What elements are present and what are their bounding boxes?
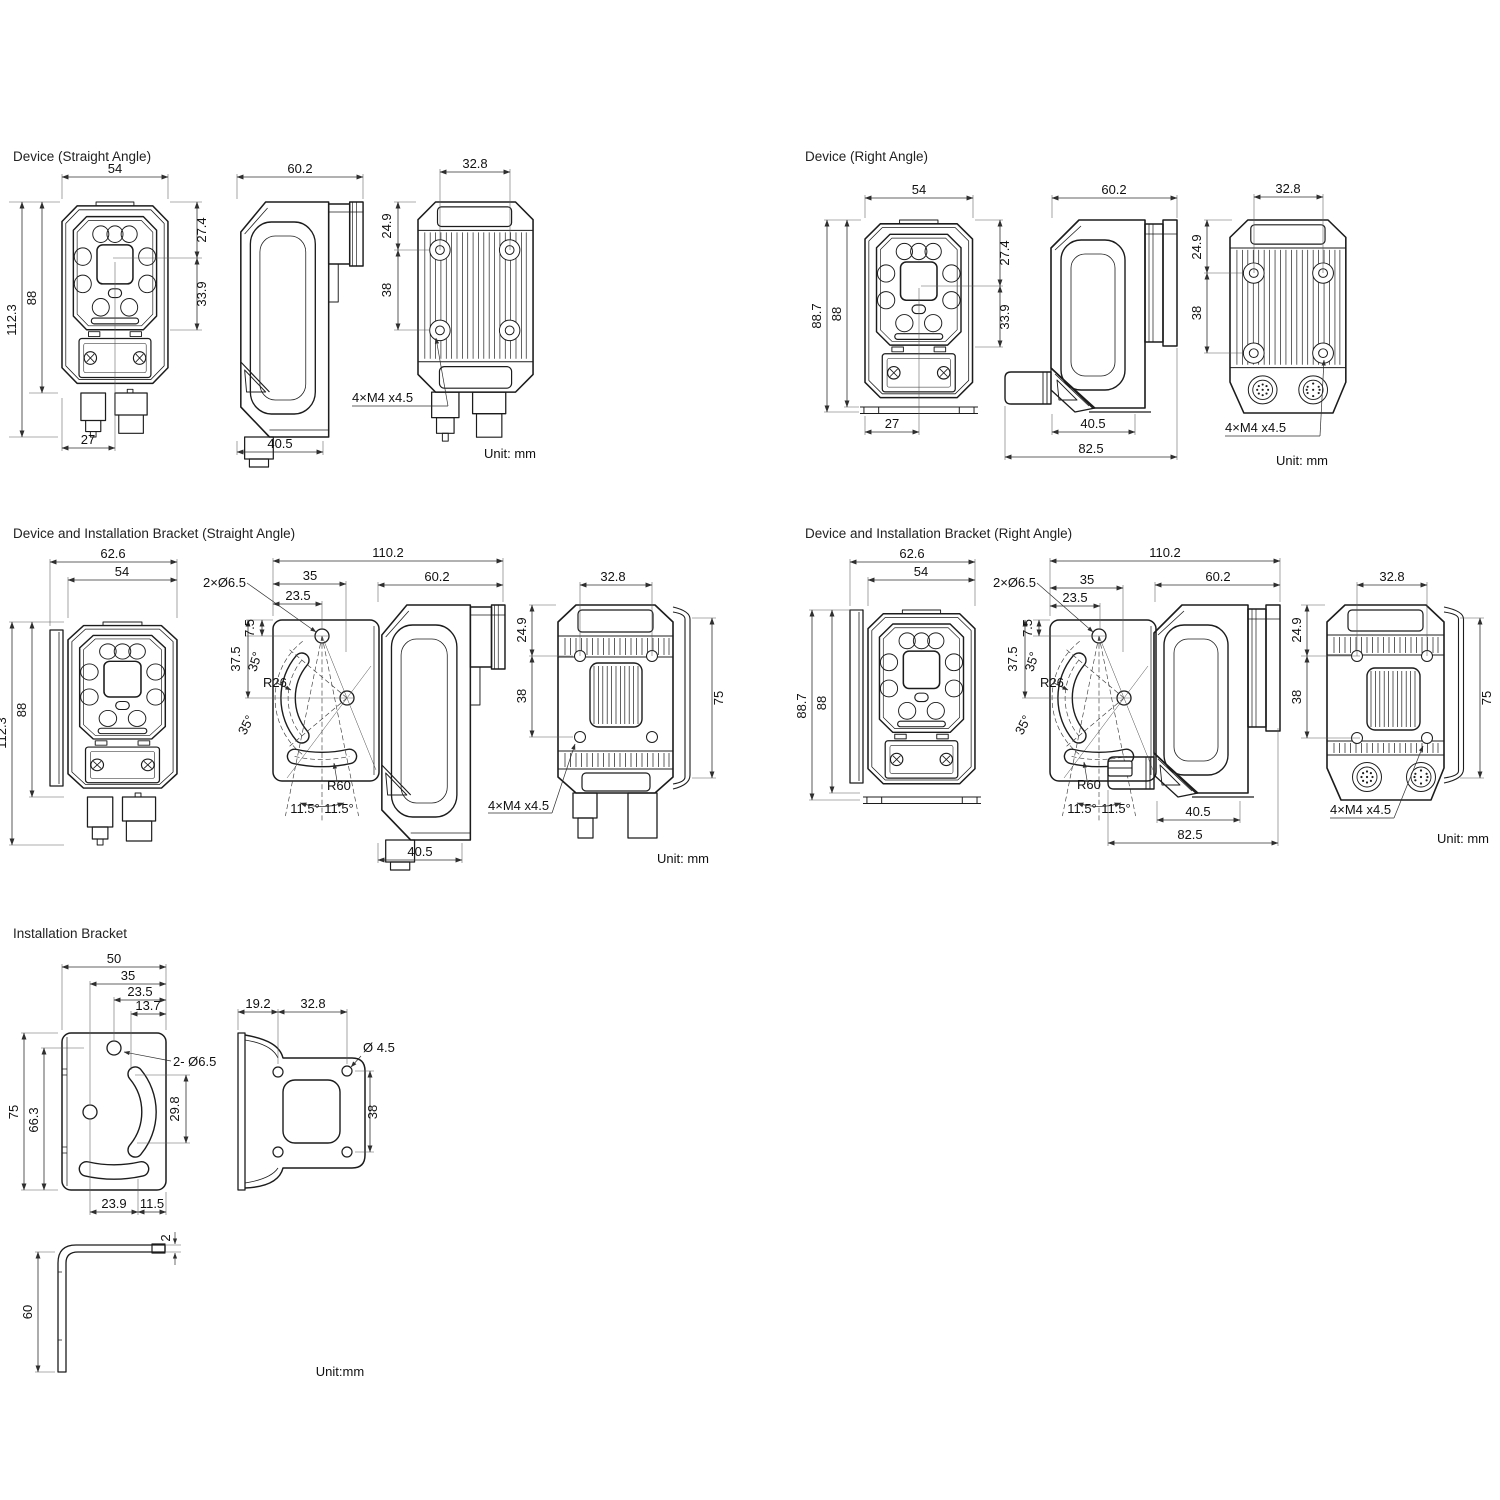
dim-bracket-width: 62.6 bbox=[899, 546, 924, 561]
unit-label: Unit: mm bbox=[657, 851, 709, 866]
bracket-view bbox=[273, 620, 379, 822]
dim-overall: 110.2 bbox=[372, 545, 404, 560]
dim-hole-x2: 23.5 bbox=[127, 984, 152, 999]
dim-overall-depth: 82.5 bbox=[1177, 827, 1202, 842]
front-view bbox=[68, 622, 177, 788]
dim-width: 50 bbox=[107, 951, 121, 966]
dim-slot-bottom-b: 11.5 bbox=[140, 1196, 164, 1211]
thread-label: 4×M4 x4.5 bbox=[352, 390, 413, 405]
bracket-edge bbox=[850, 610, 863, 783]
bracket-flange-view bbox=[238, 1033, 365, 1190]
dim-connector-x: 27 bbox=[81, 432, 95, 447]
dim-depth-bottom: 40.5 bbox=[1080, 416, 1105, 431]
dim-width: 54 bbox=[115, 564, 129, 579]
dim-hole-x2: 23.5 bbox=[285, 588, 310, 603]
angle-a: 35° bbox=[245, 650, 265, 673]
section-title: Device (Right Angle) bbox=[805, 149, 928, 164]
bracket-view bbox=[1050, 620, 1156, 822]
dim-bracket-height: 75 bbox=[711, 691, 726, 705]
dim-holes-width: 32.8 bbox=[300, 996, 325, 1011]
dim-hole-v: 38 bbox=[514, 689, 529, 703]
angle-a: 35° bbox=[1022, 650, 1042, 673]
section-bracket-right: Device and Installation Bracket (Right A… bbox=[790, 520, 1500, 885]
dim-hole-v: 38 bbox=[1289, 690, 1304, 704]
back-view bbox=[418, 202, 533, 441]
dim-hole-v: 38 bbox=[379, 283, 394, 297]
unit-label: Unit: mm bbox=[1437, 831, 1489, 846]
dim-lens-bottom: 33.9 bbox=[194, 281, 209, 306]
dim-flange: 19.2 bbox=[245, 996, 270, 1011]
dim-overall-depth: 82.5 bbox=[1078, 441, 1103, 456]
thread-label: 4×M4 x4.5 bbox=[488, 798, 549, 813]
section-title: Device (Straight Angle) bbox=[13, 149, 151, 164]
dim-back-width: 32.8 bbox=[1379, 569, 1404, 584]
bracket-face-view bbox=[62, 1033, 166, 1190]
back-view bbox=[558, 605, 690, 838]
dim-hole-y: 7.5 bbox=[1020, 619, 1035, 637]
dim-bracket-height: 75 bbox=[1479, 691, 1494, 705]
back-view bbox=[1327, 605, 1464, 800]
section-bracket-straight: Device and Installation Bracket (Straigh… bbox=[0, 520, 770, 885]
dim-depth-bottom: 40.5 bbox=[267, 436, 292, 451]
section-title: Device and Installation Bracket (Straigh… bbox=[13, 526, 295, 541]
side-view bbox=[1108, 605, 1280, 797]
side-view bbox=[1005, 220, 1177, 412]
dim-width: 54 bbox=[912, 182, 926, 197]
section-title: Device and Installation Bracket (Right A… bbox=[805, 526, 1072, 541]
dim-depth-bottom: 40.5 bbox=[1185, 804, 1210, 819]
holes-label: 2- Ø6.5 bbox=[173, 1054, 216, 1069]
front-connectors bbox=[87, 793, 155, 845]
dim-total-height: 88.7 bbox=[809, 303, 824, 328]
radius-r26: R26 bbox=[263, 675, 287, 690]
dim-bracket-width: 62.6 bbox=[100, 546, 125, 561]
angle-c: 11.5° bbox=[290, 801, 320, 816]
dim-depth: 60.2 bbox=[424, 569, 449, 584]
dim-width: 54 bbox=[108, 161, 122, 176]
angle-d: 11.5° bbox=[1101, 801, 1131, 816]
section-title: Installation Bracket bbox=[13, 926, 127, 941]
bracket-edge bbox=[50, 630, 63, 786]
dim-hole-top: 24.9 bbox=[1189, 234, 1204, 259]
radius-r60: R60 bbox=[1077, 777, 1101, 792]
dim-total-height: 112.3 bbox=[0, 717, 9, 749]
dim-body-height: 88 bbox=[24, 291, 39, 305]
dim-height: 75 bbox=[6, 1105, 21, 1119]
dim-hole-x: 35 bbox=[1080, 572, 1094, 587]
dim-depth-bottom: 40.5 bbox=[407, 844, 432, 859]
dim-lens-top: 27.4 bbox=[194, 217, 209, 242]
dim-hole-y2: 37.5 bbox=[1005, 646, 1020, 671]
dim-overall: 110.2 bbox=[1149, 545, 1181, 560]
dim-lens-top: 27.4 bbox=[997, 240, 1012, 265]
dim-depth: 60.2 bbox=[287, 161, 312, 176]
dim-width: 54 bbox=[914, 564, 928, 579]
radius-r60: R60 bbox=[327, 778, 351, 793]
dim-connector-x: 27 bbox=[885, 416, 899, 431]
angle-c: 11.5° bbox=[1067, 801, 1097, 816]
unit-label: Unit:mm bbox=[316, 1364, 364, 1379]
dim-depth: 60.2 bbox=[1205, 569, 1230, 584]
dim-lens-bottom: 33.9 bbox=[997, 304, 1012, 329]
dimensions: 50 35 23.5 13.7 2- Ø6.5 75 66.3 29.8 23.… bbox=[6, 951, 395, 1379]
front-connectors bbox=[81, 389, 147, 437]
section-device-straight: Device (Straight Angle) 54 60.2 32.8 112… bbox=[0, 140, 740, 485]
bracket-holes-label: 2×Ø6.5 bbox=[993, 575, 1036, 590]
side-view bbox=[241, 202, 363, 467]
drawing-page: Device (Straight Angle) 54 60.2 32.8 112… bbox=[0, 0, 1500, 1500]
dimensions: 62.6 54 112.3 88 110.2 2×Ø6.5 35 23.5 7.… bbox=[0, 545, 726, 866]
dim-thickness: 2 bbox=[158, 1234, 173, 1241]
dim-hole-v: 38 bbox=[1189, 306, 1204, 320]
dim-total-height: 88.7 bbox=[794, 693, 809, 718]
dim-hole-x: 35 bbox=[121, 968, 135, 983]
dim-holes-v: 38 bbox=[365, 1105, 380, 1119]
dim-hole-x2: 23.5 bbox=[1062, 590, 1087, 605]
dimensions: 62.6 54 88.7 88 110.2 2×Ø6.5 35 23.5 7.5… bbox=[794, 545, 1494, 846]
back-view bbox=[1230, 220, 1346, 413]
radius-r26: R26 bbox=[1040, 675, 1064, 690]
section-device-right: Device (Right Angle) 54 88.7 88 27.4 33.… bbox=[800, 140, 1500, 485]
connector-through-bracket bbox=[1108, 761, 1132, 776]
front-base bbox=[863, 797, 981, 804]
angle-b: 35° bbox=[235, 713, 257, 737]
dim-hole-top: 24.9 bbox=[379, 213, 394, 238]
angle-b: 35° bbox=[1012, 713, 1034, 737]
dim-depth: 60.2 bbox=[1101, 182, 1126, 197]
thread-label: 4×M4 x4.5 bbox=[1225, 420, 1286, 435]
thread-label: 4×M4 x4.5 bbox=[1330, 802, 1391, 817]
bracket-holes-label: 2×Ø6.5 bbox=[203, 575, 246, 590]
dim-body-height: 88 bbox=[14, 703, 29, 717]
dim-height2: 66.3 bbox=[26, 1107, 41, 1132]
hole-dia-label: Ø 4.5 bbox=[363, 1040, 395, 1055]
dim-slot-length: 29.8 bbox=[167, 1096, 182, 1121]
section-installation-bracket: Installation Bracket 50 35 23.5 13.7 2- … bbox=[0, 920, 480, 1400]
bracket-profile-view bbox=[58, 1244, 165, 1372]
dim-hole-y: 7.5 bbox=[242, 619, 257, 637]
dim-hole-top: 24.9 bbox=[1289, 617, 1304, 642]
angle-d: 11.5° bbox=[324, 801, 354, 816]
dim-slot-x: 13.7 bbox=[135, 998, 160, 1013]
dim-body-height: 88 bbox=[829, 307, 844, 321]
dim-back-width: 32.8 bbox=[1275, 181, 1300, 196]
dim-hole-y2: 37.5 bbox=[228, 646, 243, 671]
dim-slot-bottom-a: 23.9 bbox=[101, 1196, 126, 1211]
side-view bbox=[382, 605, 505, 870]
unit-label: Unit: mm bbox=[484, 446, 536, 461]
dim-hole-x: 35 bbox=[303, 568, 317, 583]
dim-total-height: 112.3 bbox=[4, 304, 19, 336]
front-view bbox=[868, 610, 975, 784]
dim-body-height: 88 bbox=[814, 696, 829, 710]
dim-back-width: 32.8 bbox=[600, 569, 625, 584]
dim-leg: 60 bbox=[20, 1305, 35, 1319]
unit-label: Unit: mm bbox=[1276, 453, 1328, 468]
dim-hole-top: 24.9 bbox=[514, 617, 529, 642]
dim-back-width: 32.8 bbox=[462, 156, 487, 171]
